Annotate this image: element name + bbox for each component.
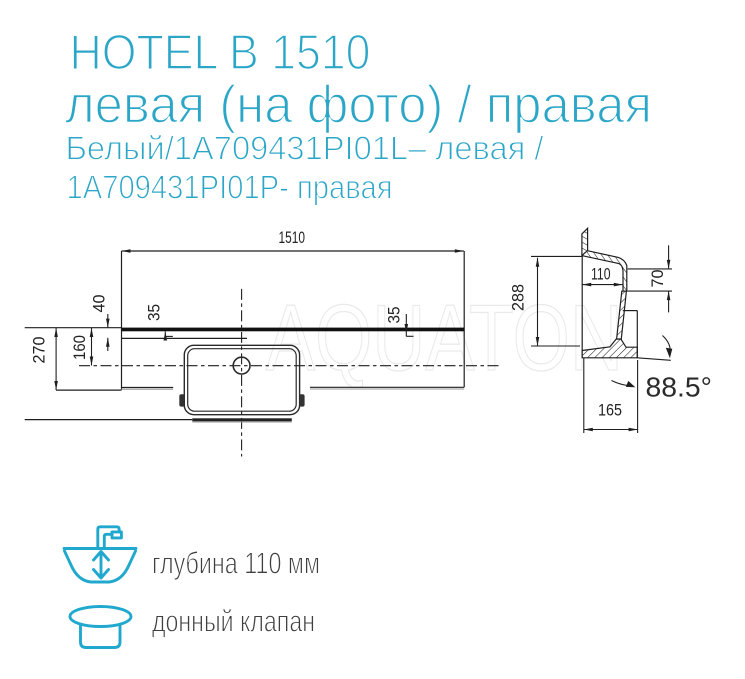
svg-text:270: 270 bbox=[31, 337, 49, 364]
svg-text:110: 110 bbox=[591, 266, 611, 284]
svg-text:глубина 110 мм: глубина 110 мм bbox=[152, 547, 320, 581]
svg-text:288: 288 bbox=[510, 284, 528, 311]
svg-text:1510: 1510 bbox=[279, 229, 306, 247]
svg-text:35: 35 bbox=[386, 307, 404, 324]
svg-text:донный клапан: донный клапан bbox=[152, 605, 315, 639]
svg-text:88.5°: 88.5° bbox=[646, 372, 713, 403]
svg-text:левая (на фото) / правая: левая (на фото) / правая bbox=[65, 76, 652, 135]
svg-text:35: 35 bbox=[146, 304, 164, 321]
svg-text:160: 160 bbox=[71, 335, 89, 360]
svg-text:70: 70 bbox=[649, 270, 667, 288]
svg-text:AQUATON: AQUATON bbox=[266, 285, 623, 390]
svg-text:40: 40 bbox=[91, 295, 109, 313]
svg-text:Белый/1A709431PI01L– левая /: Белый/1A709431PI01L– левая / bbox=[66, 130, 545, 167]
svg-text:1A709431PI01P- правая: 1A709431PI01P- правая bbox=[67, 169, 393, 206]
svg-text:165: 165 bbox=[598, 402, 622, 420]
svg-text:HOTEL B 1510: HOTEL B 1510 bbox=[70, 25, 371, 80]
